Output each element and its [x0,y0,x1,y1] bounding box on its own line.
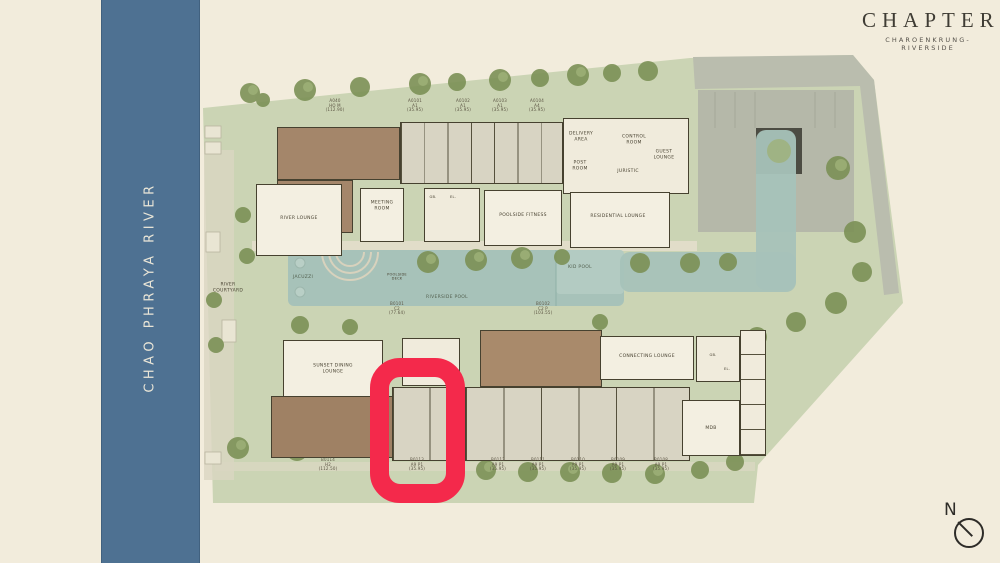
unit-label-top-4[interactable]: A0104A4(35.95) [529,99,545,113]
unit-label-top-3[interactable]: A0103A1(35.95) [492,99,508,113]
unit-label-bottom-3[interactable]: B0111A9 P1(35.95) [530,458,546,472]
unit-label-pool-0[interactable]: B0101C2(77.64) [389,302,405,316]
building-far-right-stack [740,330,766,456]
label-mdb: MDB [705,426,716,432]
compass-north-label: N [944,500,957,520]
label-poolside-fitness: POOLSIDE FITNESS [499,213,547,219]
unit-label-bottom-0[interactable]: B0114H2(112.50) [319,458,338,472]
label-sunset-dining-lounge: SUNSET DINING LOUNGE [313,363,353,374]
label-el-top: EL. [450,195,456,199]
label-delivery-area: DELIVERY AREA [569,131,593,142]
unit-label-top-0[interactable]: A040HO M(112.90) [326,99,345,113]
unit-label-bottom-2[interactable]: B0112A9 P1(35.95) [490,458,506,472]
building-bottom-brown-center [480,330,602,387]
label-guest-lounge: GUEST LOUNGE [654,149,675,160]
building-top-brown-wing [277,127,400,180]
unit-label-bottom-6[interactable]: B0108A9 P1(35.95) [653,458,669,472]
selected-unit-highlight[interactable] [370,358,465,503]
unit-label-pool-1[interactable]: B0102C2 P(103.55) [534,302,553,316]
label-poolside-deck: POOLSIDE DECK [387,273,407,282]
label-post-room: POST ROOM [572,160,587,171]
river-band: CHAO PHRAYA RIVER [101,0,200,563]
label-connecting-lounge: CONNECTING LOUNGE [619,354,675,360]
room-residential-lounge [570,192,670,248]
unit-label-top-1[interactable]: A0101A1(35.95) [407,99,423,113]
label-river-lounge: RIVER LOUNGE [280,216,317,222]
unit-label-top-2[interactable]: A0102A1(35.95) [455,99,471,113]
label-gb-top: GB. [430,195,437,199]
brand-title: CHAPTER [862,8,994,33]
site-plan-canvas: RIVER LOUNGE MEETING ROOM GB. EL. POOLSI… [0,0,1000,563]
label-residential-lounge: RESIDENTIAL LOUNGE [590,214,645,220]
river-label: CHAO PHRAYA RIVER [143,181,158,392]
label-control-room: CONTROL ROOM [622,134,646,145]
label-gb-bottom: GB. [710,353,717,357]
label-juristic: JURISTIC [617,169,639,175]
label-kid-pool: KID POOL [568,265,592,271]
unit-label-bottom-4[interactable]: B0110A9 P1(35.95) [570,458,586,472]
building-top-unit-row[interactable] [400,122,563,184]
label-meeting-room: MEETING ROOM [371,200,394,211]
building-bottom-unit-row[interactable] [465,387,690,461]
label-riverside-pool: RIVERSIDE POOL [426,295,468,301]
brand-subtitle: CHAROENKRUNG-RIVERSIDE [862,36,994,52]
brand-logo: CHAPTER CHAROENKRUNG-RIVERSIDE [862,8,994,52]
unit-label-bottom-5[interactable]: B0109A9 P1(35.95) [610,458,626,472]
west-path [204,150,234,480]
room-meeting [360,188,404,242]
label-jacuzzi: JACUZZI [293,275,313,281]
label-el-bottom: EL. [724,367,730,371]
label-river-courtyard: RIVER COURTYARD [213,282,243,293]
stair-core-right [696,336,740,382]
